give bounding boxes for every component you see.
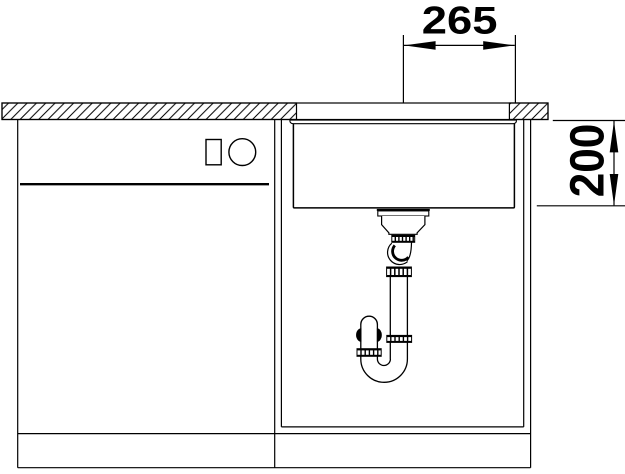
svg-text:265: 265 xyxy=(422,0,498,42)
svg-text:200: 200 xyxy=(560,124,614,198)
